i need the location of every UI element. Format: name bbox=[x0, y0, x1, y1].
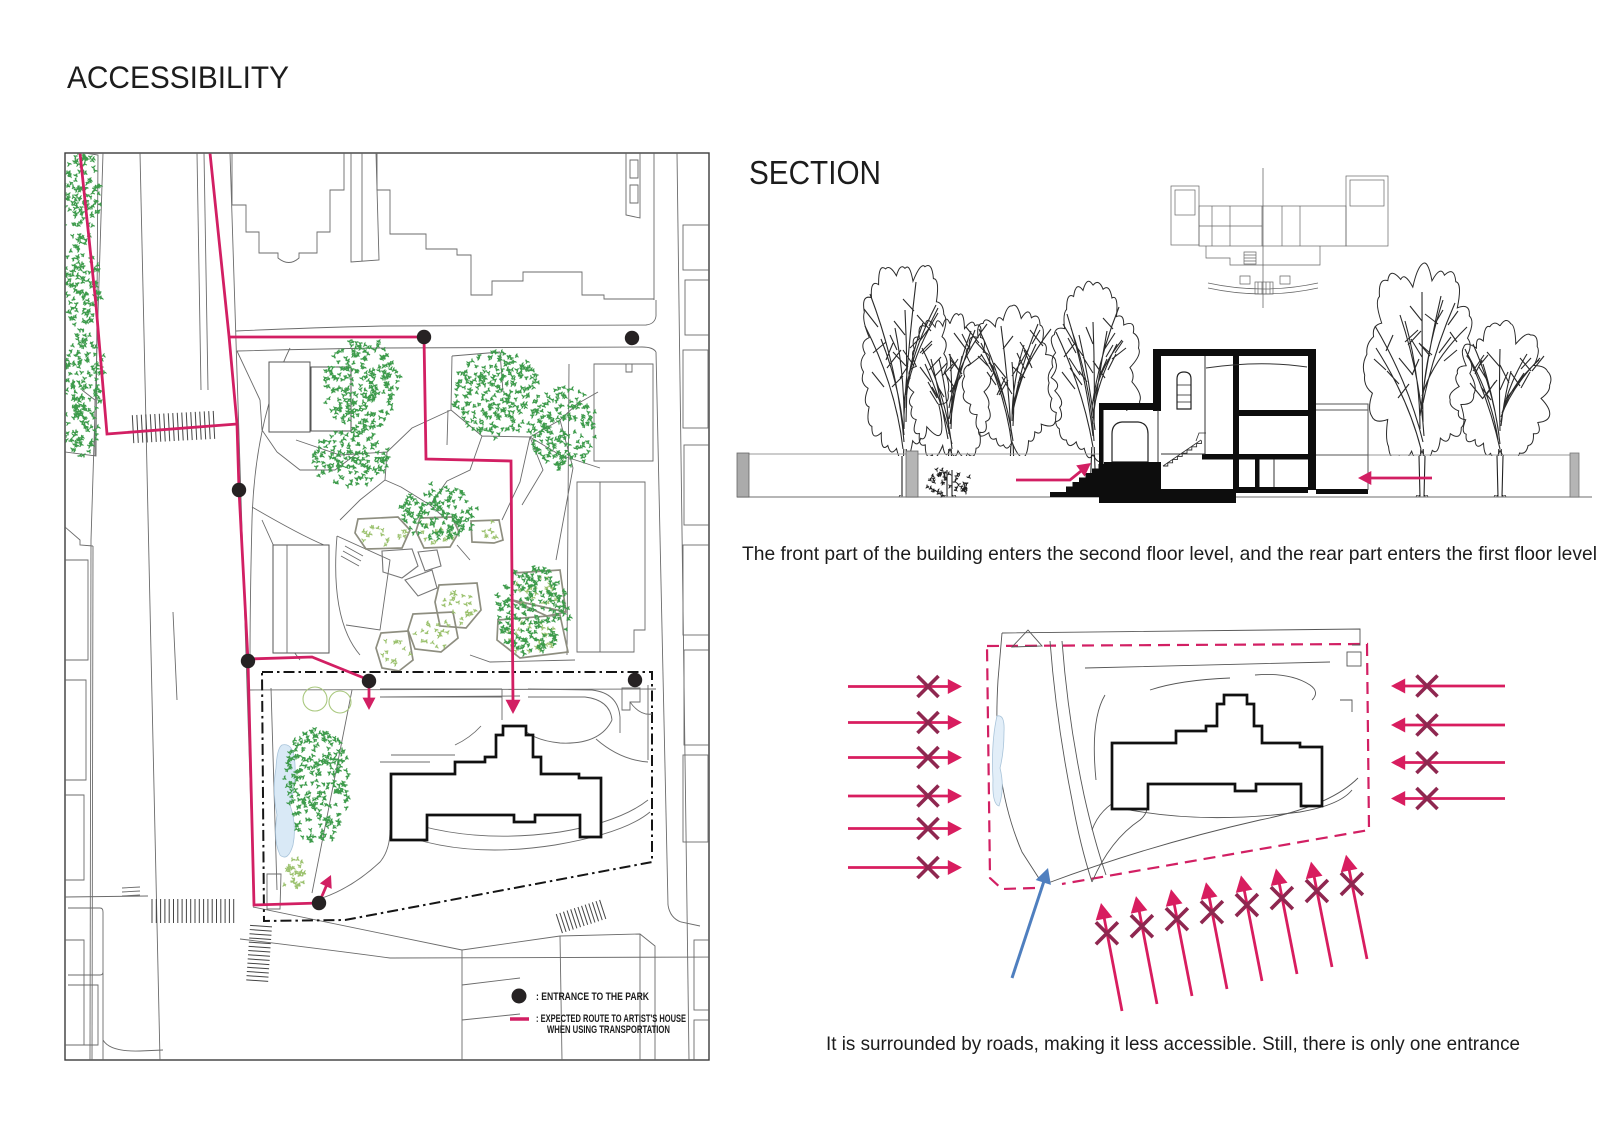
svg-text:ACCESSIBILITY: ACCESSIBILITY bbox=[67, 59, 289, 95]
svg-text:WHEN USING TRANSPORTATION: WHEN USING TRANSPORTATION bbox=[547, 1024, 670, 1036]
svg-text:SECTION: SECTION bbox=[749, 154, 881, 191]
svg-text:: ENTRANCE TO THE PARK: : ENTRANCE TO THE PARK bbox=[536, 991, 649, 1003]
svg-text:It is surrounded by roads, mak: It is surrounded by roads, making it les… bbox=[826, 1033, 1520, 1055]
svg-text:The front part of the building: The front part of the building enters th… bbox=[742, 543, 1597, 565]
